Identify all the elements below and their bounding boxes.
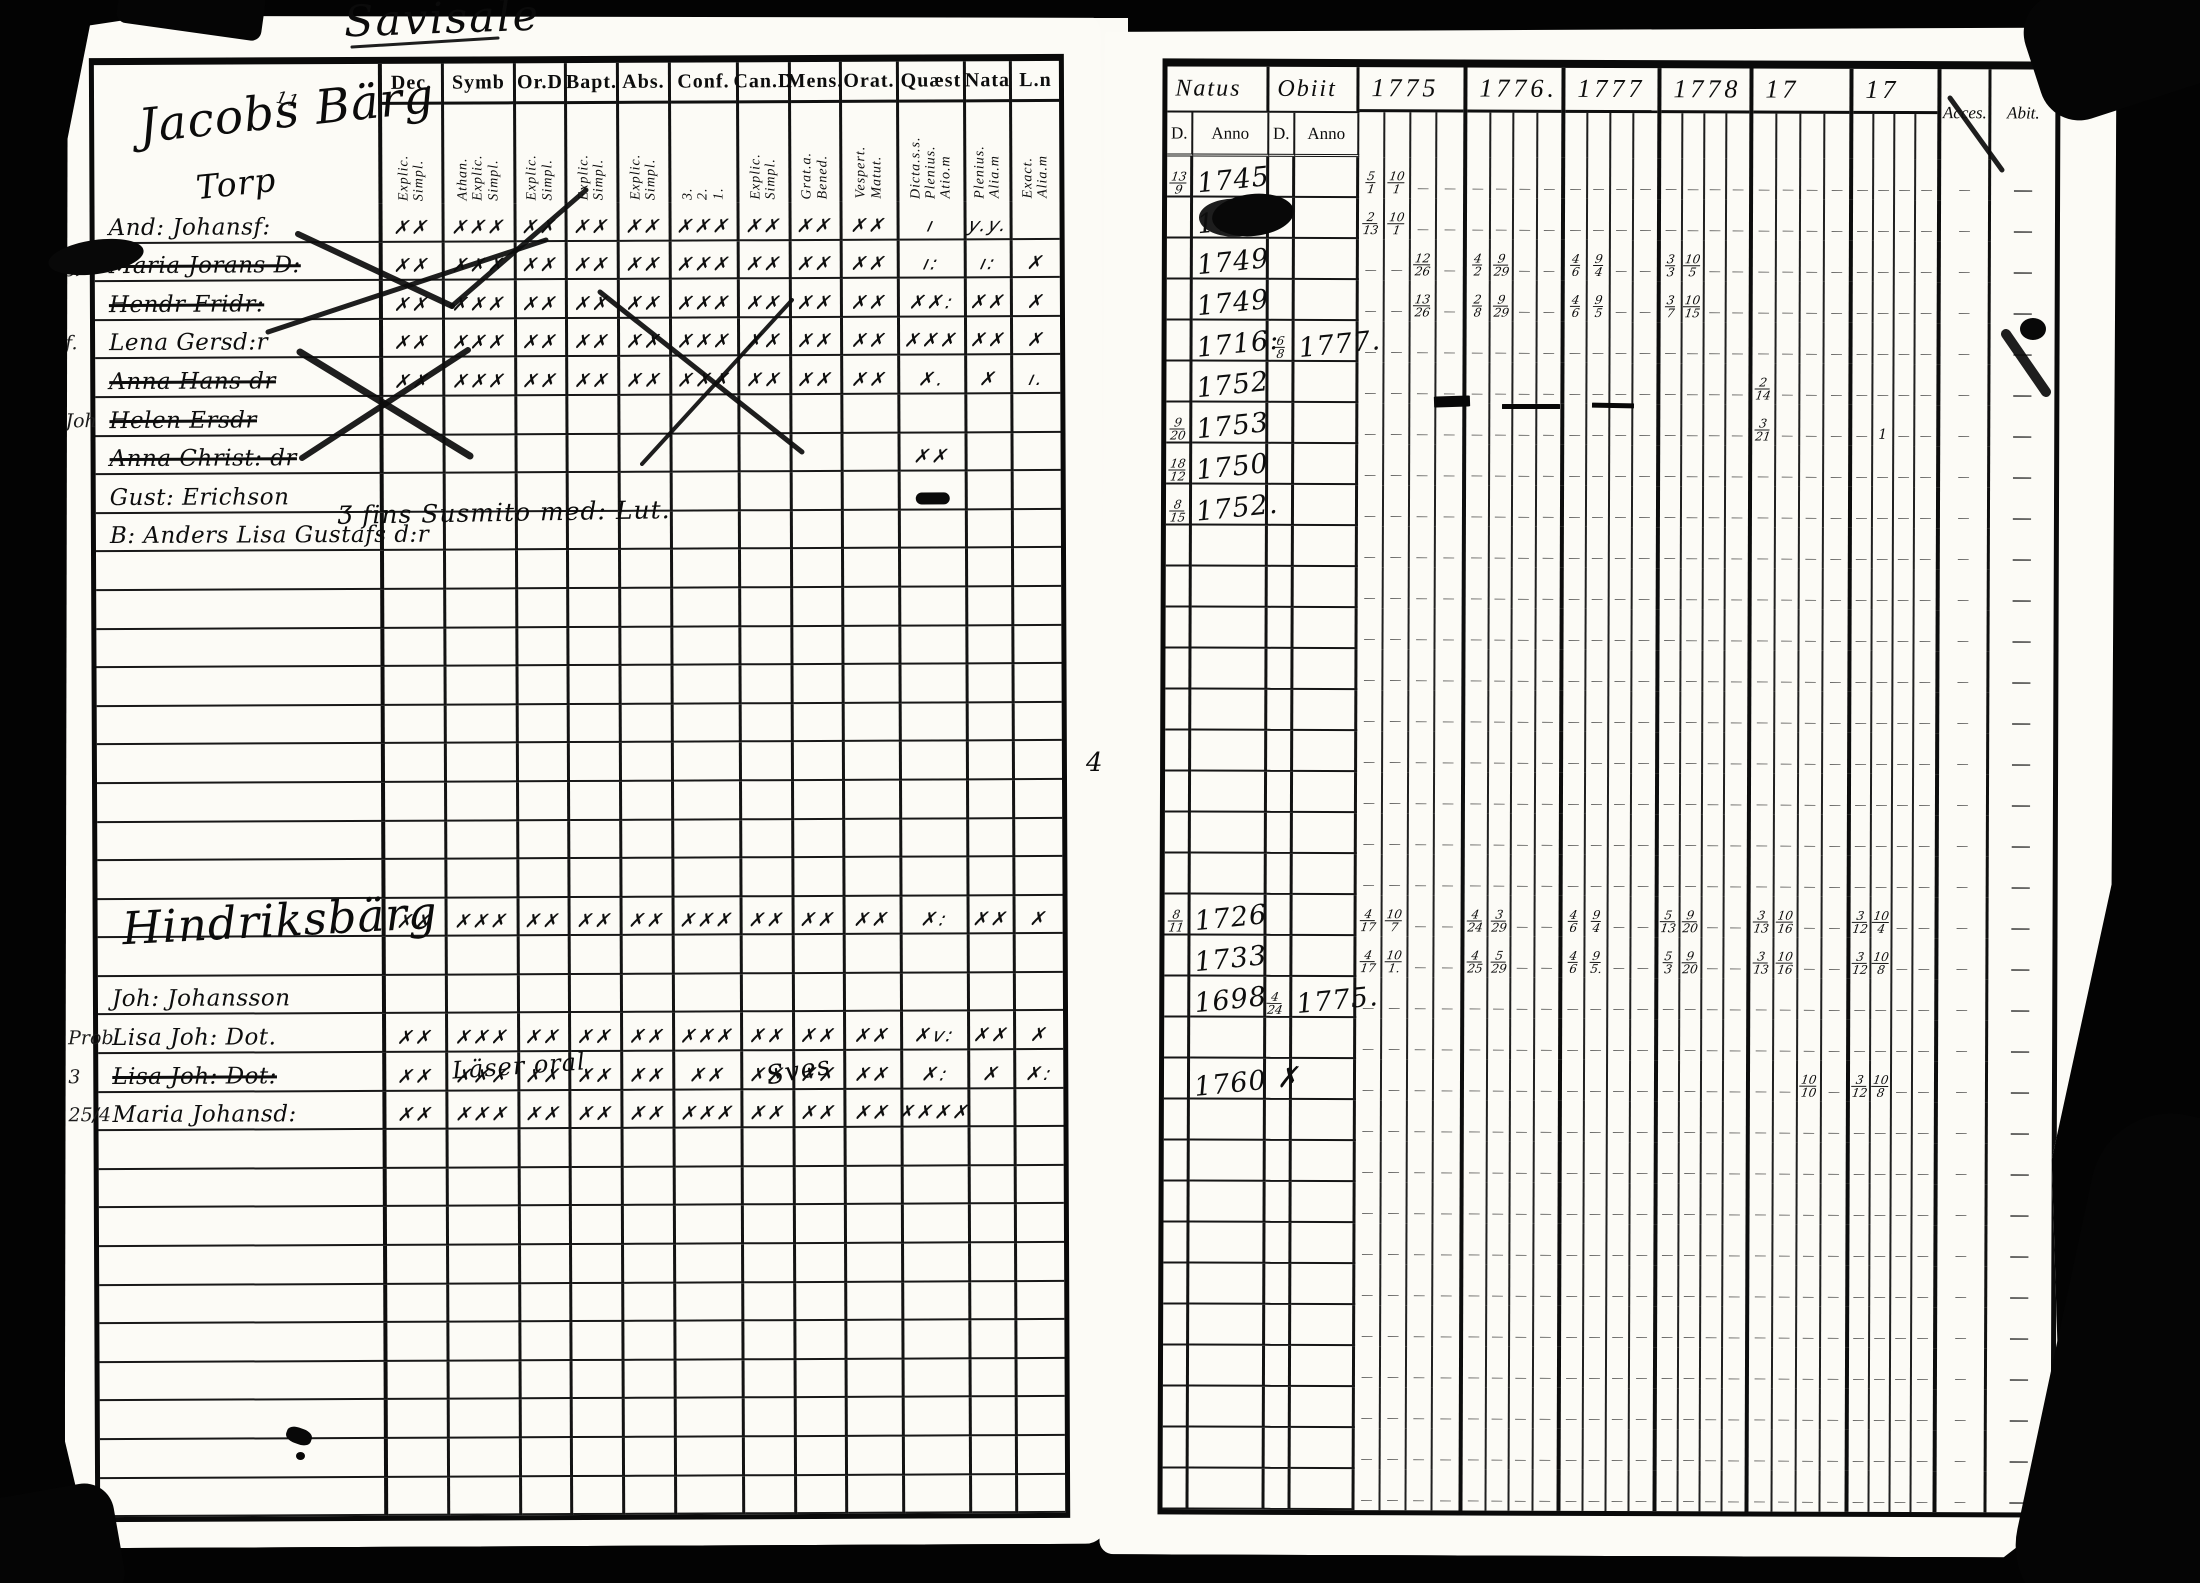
printed-dash: — [1828, 1087, 1840, 1097]
year-record-subcell: — [1776, 487, 1800, 528]
mark-cell [677, 1360, 745, 1399]
year-record-subcell: — [1486, 1429, 1510, 1470]
abit-cell: — [1990, 487, 2054, 528]
register-name-cell [96, 628, 384, 668]
printed-dash: — [1491, 1291, 1503, 1301]
year-record-cell: ———— [1356, 1100, 1464, 1141]
year-record-subcell: — [1753, 199, 1777, 240]
attendance-marks: ✗ [1025, 252, 1048, 274]
printed-dash: — [1637, 1045, 1649, 1055]
printed-dash: — [1493, 758, 1505, 768]
mark-cell: ✗✗ [967, 317, 1013, 356]
fraction-denominator: 17 [1360, 922, 1377, 933]
mark-cell [522, 1361, 573, 1400]
year-record-subcell: — [1723, 1183, 1745, 1224]
mark-cell [848, 1437, 905, 1476]
mark-cell [449, 1322, 521, 1361]
fraction-denominator: 21 [1755, 431, 1772, 442]
printed-dash: — [1661, 1373, 1673, 1383]
printed-dash: — [1615, 266, 1627, 276]
fraction-denominator: 16 [1776, 964, 1795, 975]
natus-year-cell [1191, 608, 1267, 649]
printed-dash: — [1876, 554, 1888, 564]
printed-dash: — [1954, 1456, 1966, 1466]
year-record-subcell: — [1534, 1142, 1558, 1183]
year-record-subcell: — [1872, 610, 1893, 651]
rotated-sublabel-word: Plenius. [924, 145, 938, 199]
year-record-cell: ———— [1657, 1347, 1749, 1388]
printed-dash: — [1757, 554, 1769, 564]
abit-cell: — [1989, 692, 2053, 733]
rotated-sublabel-word: Simpl. [644, 158, 658, 199]
year-record-subcell: — [1774, 1020, 1798, 1061]
printed-dash: — [1705, 1291, 1717, 1301]
year-record-subcell: — [1465, 690, 1489, 731]
year-record-subcell: — [1852, 364, 1873, 405]
year-subcolumn-line [1467, 112, 1491, 157]
year-record-subcell: 312 [1850, 897, 1871, 938]
year-record-subcell: — [1409, 608, 1435, 649]
date-fraction: 425 [1467, 951, 1482, 975]
year-record-subcell: — [1535, 773, 1559, 814]
year-record-subcell: — [1658, 1060, 1680, 1101]
printed-dash: — [1707, 922, 1719, 932]
printed-dash: — [1729, 1210, 1741, 1220]
mark-cell: ✗✗ [520, 1014, 571, 1053]
printed-dash: — [1440, 1455, 1452, 1465]
printed-dash: — [1662, 1004, 1674, 1014]
year-record-cell: ———— [1849, 1307, 1937, 1348]
printed-dash: — [1541, 717, 1553, 727]
year-record-subcell: — [1852, 569, 1873, 610]
natus-day-cell [1166, 361, 1192, 402]
year-record-subcell: — [1726, 445, 1748, 486]
mark-cell [519, 859, 570, 898]
printed-dash: — [1730, 800, 1742, 810]
year-record-subcell: — [1586, 650, 1609, 691]
year-record-subcell: — [1679, 1265, 1701, 1306]
year-record-subcell: — [1511, 1101, 1535, 1142]
printed-dash: — [1729, 1046, 1741, 1056]
mark-cell [967, 394, 1013, 433]
printed-dash: — [1390, 593, 1402, 603]
attendance-marks: ✗✗ [798, 909, 839, 931]
printed-dash: — [1517, 717, 1529, 727]
printed-dash: — [1636, 1127, 1648, 1137]
mark-cell: ✗✗ [517, 357, 568, 396]
printed-dash: — [1663, 717, 1675, 727]
mark-cell [385, 821, 447, 860]
mark-cell: ✗ [1013, 317, 1060, 356]
year-record-cell: ———— [1851, 651, 1939, 692]
printed-dash: — [1756, 882, 1768, 892]
year-record-cell: ———— [1561, 1224, 1657, 1265]
obiit-day-cell [1266, 895, 1292, 936]
year-record-subcell: — [1609, 855, 1632, 896]
year-record-subcell: — [1799, 856, 1823, 897]
year-record-cell: ———— [1561, 1347, 1657, 1388]
column-header: L.nExact.Alia.m [1012, 61, 1060, 201]
year-record-subcell: — [1822, 897, 1846, 938]
year-record-subcell: — [1873, 364, 1894, 405]
year-record-subcell: — [1359, 280, 1385, 321]
printed-dash: — [1663, 799, 1675, 809]
mark-cell [620, 434, 672, 473]
printed-dash: — [1730, 718, 1742, 728]
abit-cell: — [1988, 1020, 2052, 1061]
year-record-subcell: — [1702, 937, 1724, 978]
natus-day-cell [1162, 1468, 1188, 1509]
year-record-subcell: — [1773, 1430, 1797, 1471]
mark-cell: ✗ [967, 355, 1013, 394]
mark-cell [970, 1089, 1016, 1128]
year-record-cell: ———— [1657, 1388, 1749, 1429]
printed-dash: — [1590, 881, 1602, 891]
printed-dash: — [1853, 1128, 1865, 1138]
printed-dash: — [1778, 1374, 1790, 1384]
obiit-day-cell [1268, 567, 1294, 608]
printed-dash: — [1685, 676, 1697, 686]
printed-dash: — [1957, 554, 1969, 564]
printed-dash: — [1896, 964, 1908, 974]
abit-cell: — [1991, 159, 2055, 200]
year-record-subcell: — [1433, 1428, 1459, 1469]
printed-dash: — [1515, 1332, 1527, 1342]
mark-cell [792, 433, 843, 472]
printed-dash: — [1686, 594, 1698, 604]
printed-dash: — [1664, 553, 1676, 563]
printed-dash: — [1804, 882, 1816, 892]
printed-dash: — [1957, 513, 1969, 523]
mark-cell [446, 473, 518, 512]
obiit-day-cell [1265, 1182, 1291, 1223]
printed-dash: — [1440, 1496, 1452, 1506]
mark-cell: ✗✗✗ [448, 1052, 520, 1091]
printed-dash: — [1684, 1168, 1696, 1178]
printed-dash: — [1804, 841, 1816, 851]
printed-dash: — [1541, 881, 1553, 891]
year-record-subcell: — [1820, 1471, 1844, 1512]
printed-dash: — [1613, 840, 1625, 850]
printed-dash: — [1387, 1372, 1399, 1382]
year-record-subcell: — [1773, 1389, 1797, 1430]
year-record-subcell: — [1915, 364, 1936, 405]
date-fraction: 95 [1593, 295, 1603, 319]
year-record-cell: ———— [1466, 403, 1564, 444]
natus-year-cell: 1760 ✗ [1190, 1059, 1266, 1100]
year-record-subcell: 108 [1871, 1061, 1892, 1102]
year-record-cell: ———— [1850, 1143, 1938, 1184]
attendance-marks: ✗✗ [747, 1064, 788, 1086]
printed-dash: — [1387, 1249, 1399, 1259]
year-record-cell: ———— [1753, 240, 1853, 281]
printed-dash: — [1361, 1331, 1373, 1341]
mark-cell [572, 1206, 624, 1245]
printed-dash: — [1955, 1087, 1967, 1097]
year-record-subcell: — [1563, 650, 1586, 691]
printed-dash: — [1542, 553, 1554, 563]
year-record-subcell: — [1609, 814, 1632, 855]
fraction-denominator: 8 [1871, 1088, 1890, 1099]
obiit-year-cell [1295, 198, 1359, 239]
year-record-cell: ———— [1356, 1059, 1464, 1100]
printed-dash: — [1898, 226, 1910, 236]
year-record-subcell: — [1632, 732, 1655, 773]
mark-cell: ı: [967, 240, 1013, 279]
year-record-subcell: — [1463, 1264, 1487, 1305]
mark-cell [742, 858, 794, 897]
mark-cell: ✗✗✗ [675, 1090, 743, 1129]
year-record-subcell: — [1633, 404, 1656, 445]
date-fraction: 53 [1664, 951, 1674, 975]
year-record-cell: ———— [1357, 854, 1465, 895]
year-record-cell: ———— [1659, 855, 1751, 896]
mark-cell: ✗✗ [383, 242, 445, 281]
printed-dash: — [1589, 1209, 1601, 1219]
year-record-subcell: — [1561, 1224, 1584, 1265]
printed-dash: — [1518, 389, 1530, 399]
printed-dash: — [1804, 677, 1816, 687]
year-record-subcell: — [1797, 1430, 1821, 1471]
date-fraction: 95. [1590, 951, 1602, 975]
mark-cell: ✗✗ [623, 1013, 675, 1052]
printed-dash: — [1413, 1413, 1425, 1423]
acces-cell: — [1937, 1389, 1987, 1430]
mark-cell [518, 628, 569, 667]
year-record-subcell: — [1434, 936, 1460, 977]
printed-dash: — [1875, 1046, 1887, 1056]
printed-dash: — [1539, 1332, 1551, 1342]
printed-dash: — [1639, 430, 1651, 440]
natus-year-cell: 1698424 [1190, 977, 1266, 1018]
year-subcolumn-line [1359, 112, 1385, 157]
year-record-cell: ———— [1465, 731, 1563, 772]
printed-dash: — [1782, 185, 1794, 195]
printed-dash: — [1364, 634, 1376, 644]
printed-dash: — [1806, 185, 1818, 195]
printed-dash: — [1781, 390, 1793, 400]
date-fraction: 1015 [1684, 295, 1701, 319]
printed-dash: — [1414, 1126, 1426, 1136]
year-record-subcell: — [1357, 813, 1383, 854]
year-record-subcell: — [1584, 1429, 1607, 1470]
printed-dash: — [1755, 1046, 1767, 1056]
acces-cell: — [1940, 487, 1990, 528]
column-label: L.n [1012, 61, 1059, 102]
natus-year-cell [1191, 649, 1267, 690]
mark-cell: ✗✗ [795, 1090, 846, 1129]
year-record-subcell: — [1659, 814, 1681, 855]
obiit-year-cell [1294, 485, 1358, 526]
printed-dash: — [1415, 675, 1427, 685]
natus-day-cell [1167, 279, 1193, 320]
year-record-subcell: — [1586, 732, 1609, 773]
printed-dash: — [1805, 390, 1817, 400]
printed-dash: — [1518, 553, 1530, 563]
attendance-marks: ✗✗ [392, 293, 433, 315]
printed-dash: — [1414, 1044, 1426, 1054]
printed-dash: — [1920, 431, 1932, 441]
year-record-subcell: — [1464, 1059, 1488, 1100]
year-record-subcell: — [1563, 855, 1586, 896]
printed-dash: — [1729, 1169, 1741, 1179]
printed-dash: — [1956, 841, 1968, 851]
year-record-subcell: — [1801, 159, 1825, 200]
mark-cell: ✗✗ [791, 202, 842, 241]
year-record-cell: ———— [1853, 200, 1941, 241]
obiit-year-cell [1294, 362, 1358, 403]
year-record-subcell: — [1610, 404, 1633, 445]
printed-dash: — [1831, 267, 1843, 277]
printed-dash: — [1828, 1046, 1840, 1056]
mark-cell [902, 857, 969, 896]
year-record-subcell: — [1892, 1061, 1913, 1102]
year-record-subcell: — [1893, 815, 1914, 856]
printed-dash: — [1389, 798, 1401, 808]
date-fraction: 312 [1852, 911, 1867, 935]
printed-dash: — [1873, 1456, 1885, 1466]
year-record-subcell: — [1750, 1019, 1774, 1060]
printed-dash: — [1755, 1087, 1767, 1097]
year-record-cell: ———— [1749, 1224, 1849, 1265]
printed-dash: — [1779, 1210, 1791, 1220]
printed-dash: — [2009, 1292, 2029, 1303]
printed-dash: — [1728, 1497, 1740, 1507]
attendance-marks: ✗✗✗ [450, 370, 509, 392]
mark-cell [383, 397, 445, 436]
mark-cell [521, 1284, 572, 1323]
printed-dash: — [1387, 1495, 1399, 1505]
year-record-subcell: — [1631, 1019, 1654, 1060]
year-record-subcell: — [1408, 936, 1434, 977]
printed-dash: — [1805, 431, 1817, 441]
mark-cell: ✗✗ [571, 898, 623, 937]
printed-dash: — [1919, 595, 1931, 605]
year-record-subcell: — [1680, 1142, 1702, 1183]
year-record-subcell: — [1916, 241, 1937, 282]
year-record-subcell: — [1853, 282, 1874, 323]
printed-dash: — [1664, 512, 1676, 522]
printed-dash: — [1387, 1454, 1399, 1464]
year-record-subcell: — [1433, 1346, 1459, 1387]
mark-cell [793, 511, 844, 550]
printed-dash: — [1707, 881, 1719, 891]
register-name-cell: f.Lena Gersd:r [95, 320, 383, 360]
printed-dash: — [1780, 718, 1792, 728]
mark-cell [1016, 973, 1063, 1012]
mark-cell: ✗✗ [516, 203, 567, 242]
rotated-sublabel-word: Simpl. [541, 159, 555, 200]
year-record-subcell: — [1633, 527, 1656, 568]
year-record-subcell: — [1752, 445, 1776, 486]
year-record-subcell: — [1561, 1183, 1584, 1224]
printed-dash: — [2010, 882, 2030, 893]
abit-cell: — [1989, 815, 2053, 856]
year-record-subcell: — [1702, 896, 1724, 937]
year-record-subcell: — [1408, 1141, 1434, 1182]
year-record-subcell: — [1487, 1224, 1511, 1265]
printed-dash: — [1361, 1290, 1373, 1300]
year-record-subcell: — [1798, 897, 1822, 938]
year-record-subcell: — [1916, 282, 1937, 323]
printed-dash: — [1828, 1169, 1840, 1179]
printed-dash: — [1612, 1332, 1624, 1342]
printed-dash: — [1802, 1456, 1814, 1466]
printed-dash: — [1416, 429, 1428, 439]
printed-dash: — [1828, 1210, 1840, 1220]
year-record-subcell: — [1609, 691, 1632, 732]
acces-cell: — [1937, 1430, 1987, 1471]
year-record-subcell: — [1384, 526, 1410, 567]
year-record-subcell: — [1821, 1266, 1845, 1307]
mark-cell [573, 1438, 625, 1477]
year-record-subcell: — [1435, 690, 1461, 731]
year-record-cell: ———— [1657, 1265, 1749, 1306]
printed-dash: — [2008, 1456, 2028, 1467]
obiit-year-cell [1292, 936, 1356, 977]
attendance-marks: ✗✗ [849, 291, 890, 313]
printed-dash: — [1492, 1168, 1504, 1178]
printed-dash: — [1415, 757, 1427, 767]
natus-year-cell: 1745 [1193, 198, 1269, 239]
printed-dash: — [1469, 881, 1481, 891]
printed-dash: — [1592, 348, 1604, 358]
printed-dash: — [1589, 1250, 1601, 1260]
year-record-subcell: — [1679, 1183, 1701, 1224]
year-record-cell: ———— [1562, 978, 1658, 1019]
natus-day-cell: 811 [1164, 894, 1190, 935]
year-record-cell: ———— [1656, 1470, 1748, 1511]
year-record-subcell: — [1537, 240, 1561, 281]
register-name-cell [97, 821, 385, 861]
year-record-subcell: — [1704, 322, 1726, 363]
year-record-subcell: — [1587, 486, 1610, 527]
mark-cell [623, 974, 675, 1013]
year-record-subcell: 37 [1661, 281, 1683, 322]
year-record-subcell: — [1489, 732, 1513, 773]
abit-cell: — [1989, 856, 2053, 897]
printed-dash: — [1958, 349, 1970, 359]
year-record-cell: ———— [1358, 444, 1466, 485]
year-record-subcell: — [1682, 322, 1704, 363]
attendance-marks: ✗✗ [744, 253, 785, 275]
day-subheader: D. [1167, 112, 1193, 156]
year-record-cell: ———— [1850, 1102, 1938, 1143]
printed-dash: — [1683, 1291, 1695, 1301]
year-record-subcell: — [1871, 979, 1892, 1020]
year-record-subcell: — [1892, 1102, 1913, 1143]
printed-dash: — [1805, 636, 1817, 646]
printed-dash: — [1637, 881, 1649, 891]
mark-cell: ✗✗✗ [672, 318, 740, 357]
printed-dash: — [1875, 1005, 1887, 1015]
printed-dash: — [1417, 183, 1429, 193]
year-record-subcell: — [1851, 610, 1872, 651]
printed-dash: — [1894, 1415, 1906, 1425]
printed-dash: — [1442, 717, 1454, 727]
printed-dash: — [1662, 1127, 1674, 1137]
mark-cell [848, 1359, 905, 1398]
mark-cell [969, 741, 1015, 780]
obiit-day-cell [1265, 1305, 1291, 1346]
mark-cell [796, 1282, 847, 1321]
printed-dash: — [1615, 430, 1627, 440]
year-record-subcell: — [1658, 1101, 1680, 1142]
printed-dash: — [1568, 512, 1580, 522]
printed-dash: — [2012, 349, 2032, 360]
year-record-subcell: — [1821, 1184, 1845, 1225]
year-record-subcell: — [1409, 813, 1435, 854]
